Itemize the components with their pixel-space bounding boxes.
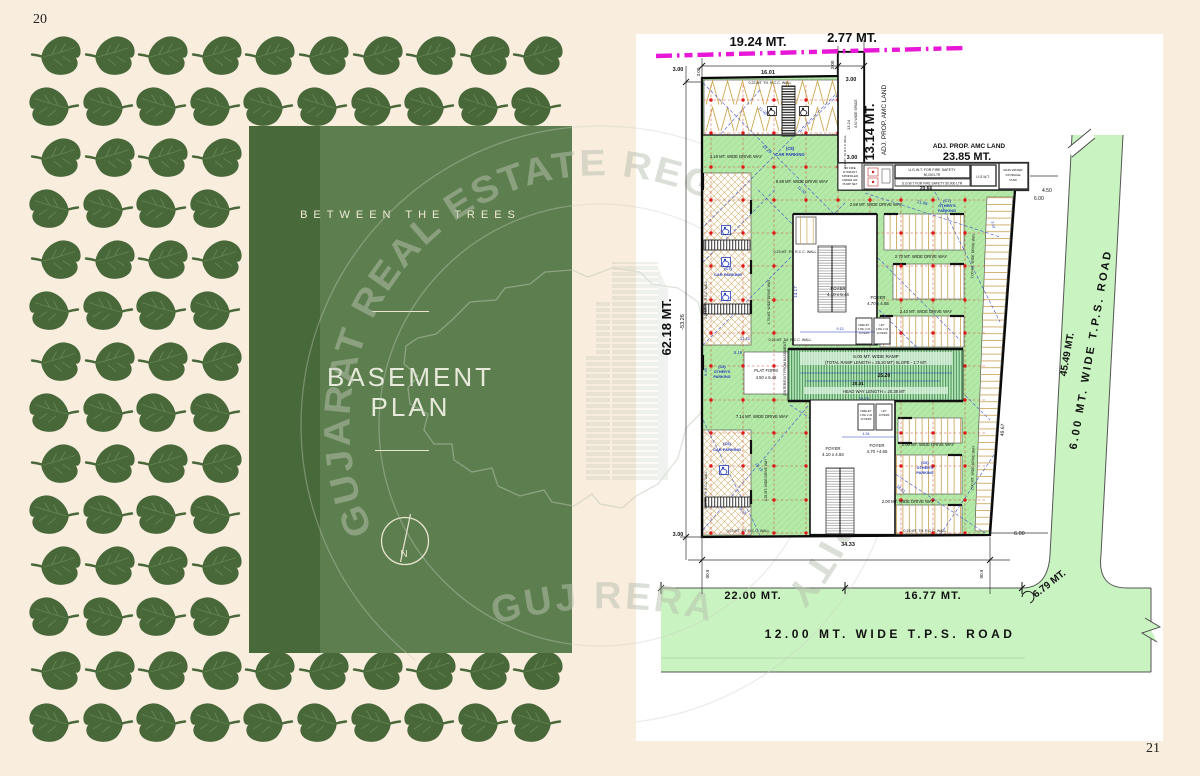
svg-text:4.34: 4.34 [863, 432, 870, 436]
svg-text:CAR PARKING: CAR PARKING [775, 152, 804, 157]
svg-text:0.23 MT. TH. R.C.C. WALL: 0.23 MT. TH. R.C.C. WALL [727, 529, 770, 533]
svg-text:0.23 MT. TH. R.C.C. WALL: 0.23 MT. TH. R.C.C. WALL [704, 471, 708, 509]
svg-text:23.85 MT.: 23.85 MT. [943, 151, 991, 163]
svg-text:20.31: 20.31 [852, 381, 864, 386]
svg-text:00.9: 00.9 [705, 569, 710, 578]
svg-text:4.19 MT. WIDE DRIVE WAY: 4.19 MT. WIDE DRIVE WAY [710, 154, 763, 159]
svg-text:1.83x 2.44: 1.83x 2.44 [858, 327, 871, 331]
svg-text:FIRELIFT: FIRELIFT [860, 409, 872, 413]
svg-text:ADJ. PROP. AMC LAND: ADJ. PROP. AMC LAND [881, 85, 888, 156]
svg-text:U.G.W.T.: U.G.W.T. [976, 175, 990, 179]
svg-text:7.14 MT. WIDE DRIVE WAY: 7.14 MT. WIDE DRIVE WAY [736, 414, 789, 419]
svg-text:00.9: 00.9 [979, 569, 984, 578]
svg-text:4.25 MT. WIDE DRIVE WAY: 4.25 MT. WIDE DRIVE WAY [764, 458, 768, 501]
svg-text:13.24: 13.24 [846, 119, 851, 130]
svg-text:6.00: 6.00 [1014, 531, 1025, 537]
svg-text:2.00 MT. WIDE DRIVE WAY: 2.00 MT. WIDE DRIVE WAY [902, 442, 955, 447]
svg-text:62.18 MT.: 62.18 MT. [659, 298, 674, 355]
svg-text:25.20: 25.20 [878, 373, 891, 379]
svg-text:11.41: 11.41 [740, 336, 751, 341]
svg-text:14.17: 14.17 [793, 286, 798, 298]
svg-text:3.00: 3.00 [673, 532, 684, 538]
svg-text:FOYER: FOYER [870, 295, 885, 300]
svg-text:2.43 MT. WIDE DRIVE WAY: 2.43 MT. WIDE DRIVE WAY [900, 309, 953, 314]
svg-text:2.70 MT. WIDE DRIVE WAY: 2.70 MT. WIDE DRIVE WAY [895, 254, 948, 259]
svg-text:4.70 x 4.65: 4.70 x 4.65 [867, 301, 889, 306]
svg-text:LIFT: LIFT [881, 409, 887, 413]
svg-text:FOYER: FOYER [869, 443, 884, 448]
svg-text:CAR PARKING: CAR PARKING [714, 272, 742, 277]
svg-text:9.13: 9.13 [837, 327, 844, 331]
svg-text:2.00 MT. WIDE DRIVE WAY: 2.00 MT. WIDE DRIVE WAY [882, 499, 935, 504]
svg-text:2.59 MT. WIDE DRIVE WAY: 2.59 MT. WIDE DRIVE WAY [850, 202, 903, 207]
svg-text:TANK: TANK [1009, 178, 1018, 182]
svg-text:4.10 x 4.84: 4.10 x 4.84 [822, 452, 844, 457]
svg-text:PARKING: PARKING [938, 208, 956, 213]
svg-text:6.00 MT. WIDE RAMP: 6.00 MT. WIDE RAMP [853, 354, 898, 359]
svg-text:PUMP SET: PUMP SET [843, 182, 858, 186]
svg-text:FIRELIFT: FIRELIFT [858, 323, 870, 327]
svg-text:0.23 MT. TH. R.C.C. WALL: 0.23 MT. TH. R.C.C. WALL [704, 281, 708, 319]
svg-text:(C6): (C6) [921, 461, 929, 465]
svg-text:4.50: 4.50 [1042, 188, 1052, 194]
svg-text:CAR PARKING: CAR PARKING [713, 447, 741, 452]
svg-text:9.23 MT. TH R.C.C WALL: 9.23 MT. TH R.C.C WALL [843, 135, 847, 170]
svg-text:3.00: 3.00 [847, 155, 858, 161]
svg-text:12.00 MT. WIDE T.P.S. ROAD: 12.00 MT. WIDE T.P.S. ROAD [765, 627, 1016, 641]
svg-text:8.98 MT. WIDE DRIVE WAY: 8.98 MT. WIDE DRIVE WAY [776, 179, 829, 184]
svg-text:3.00: 3.00 [673, 67, 684, 73]
svg-text:13.14 MT.: 13.14 MT. [862, 103, 877, 160]
svg-text:0.23 MT. TH. R.C.C. WALL: 0.23 MT. TH. R.C.C. WALL [774, 250, 817, 254]
svg-text:10 PERS: 10 PERS [859, 331, 870, 335]
svg-text:OTHER'S: OTHER'S [714, 370, 731, 374]
svg-text:2.77 MT.: 2.77 MT. [827, 30, 877, 45]
svg-text:22.00 MT.: 22.00 MT. [724, 590, 781, 602]
svg-text:3.00: 3.00 [830, 60, 835, 69]
svg-text:(C8): (C8) [718, 365, 726, 369]
svg-text:19.24 MT.: 19.24 MT. [729, 34, 786, 49]
svg-text:0.23 MT. TH. R.C.C. WALL: 0.23 MT. TH. R.C.C. WALL [749, 81, 792, 85]
svg-text:U.G.W.T. FOR FIRE SAFETY: U.G.W.T. FOR FIRE SAFETY [908, 168, 956, 172]
svg-text:-53.26: -53.26 [680, 314, 686, 330]
svg-text:5.19: 5.19 [734, 350, 743, 355]
svg-text:STORAGE: STORAGE [1005, 173, 1020, 177]
svg-text:4.70 +4.65: 4.70 +4.65 [867, 449, 888, 454]
svg-text:50,000 LTR: 50,000 LTR [924, 173, 941, 177]
svg-text:(C8): (C8) [786, 146, 795, 151]
svg-text:U.G.W.T FOR FIRE SAFETY 50.000: U.G.W.T FOR FIRE SAFETY 50.000 LTR [902, 182, 963, 186]
svg-text:(C6): (C6) [723, 441, 731, 446]
svg-text:HEAD WAY LENGTH = 20.38 MT: HEAD WAY LENGTH = 20.38 MT [843, 389, 906, 394]
svg-text:4.10 x 5.44: 4.10 x 5.44 [827, 292, 849, 297]
svg-text:6.40: 6.40 [703, 367, 708, 376]
svg-text:0.23 MT. TH. R.C.C. WALL: 0.23 MT. TH. R.C.C. WALL [769, 338, 812, 342]
svg-text:6.00: 6.00 [1034, 196, 1044, 202]
svg-text:4.50 x 6.46: 4.50 x 6.46 [756, 375, 777, 380]
svg-text:0.23 MT. TH. R.C.C. WALL: 0.23 MT. TH. R.C.C. WALL [904, 529, 947, 533]
svg-text:PARKING: PARKING [713, 375, 730, 379]
svg-text:10 PERS: 10 PERS [861, 417, 872, 421]
svg-text:RAIN WATER: RAIN WATER [1003, 168, 1023, 172]
svg-text:1.83x 2.44: 1.83x 2.44 [860, 413, 873, 417]
svg-text:4.76 MT. WIDE DRIVE WAY: 4.76 MT. WIDE DRIVE WAY [767, 279, 771, 325]
svg-text:(ENTER/EXIT FROM BASEMENT): (ENTER/EXIT FROM BASEMENT) [783, 340, 787, 396]
svg-text:ADJ. PROP. AMC LAND: ADJ. PROP. AMC LAND [933, 143, 1006, 150]
svg-text:(TOTAL RAMP LENGTH = 25.20 MT): (TOTAL RAMP LENGTH = 25.20 MT) SLOPE - 1… [825, 360, 927, 365]
svg-text:34.33: 34.33 [841, 542, 855, 548]
svg-text:PLAT FORM: PLAT FORM [754, 368, 778, 373]
svg-text:16.77 MT.: 16.77 MT. [904, 590, 961, 602]
svg-text:49.67: 49.67 [1000, 423, 1007, 436]
svg-text:(C7): (C7) [724, 266, 732, 271]
svg-text:16.01: 16.01 [761, 70, 775, 76]
svg-text:10 PERS: 10 PERS [877, 331, 888, 335]
svg-text:3.00: 3.00 [696, 67, 701, 76]
svg-text:10 PERS: 10 PERS [879, 413, 890, 417]
svg-text:OTHER'S: OTHER'S [917, 466, 934, 470]
svg-text:1.83x 2.44: 1.83x 2.44 [876, 327, 889, 331]
svg-text:LIFT: LIFT [879, 323, 885, 327]
svg-text:FOYER: FOYER [830, 286, 845, 291]
svg-text:FOYER: FOYER [825, 446, 840, 451]
svg-text:4.50 WIDE SPACE: 4.50 WIDE SPACE [854, 99, 858, 128]
svg-text:PARKING: PARKING [916, 471, 933, 475]
svg-text:20.66: 20.66 [920, 186, 933, 192]
svg-text:3.00: 3.00 [846, 77, 857, 83]
